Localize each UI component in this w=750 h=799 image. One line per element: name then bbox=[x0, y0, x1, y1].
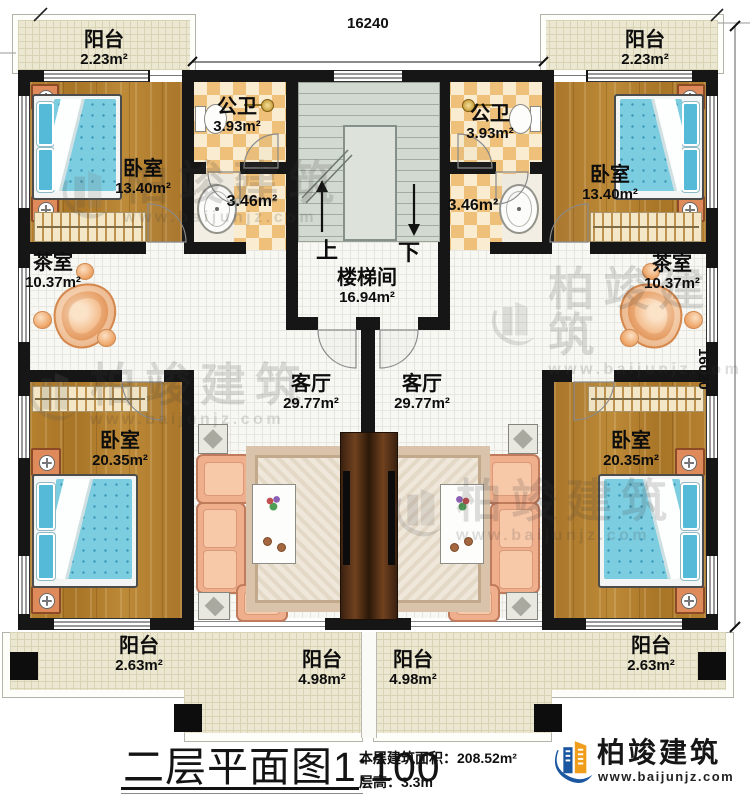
room-label-bedroom-tr: 卧室13.40m² bbox=[582, 165, 638, 203]
washbasin bbox=[499, 184, 539, 234]
floor-area-text: 本层建筑面积：208.52m² bbox=[359, 748, 517, 768]
room-label-wash-r: 3.46m² bbox=[448, 197, 499, 214]
room-label-living-r: 客厅29.77m² bbox=[394, 374, 450, 412]
room-label-balcony-bmr: 阳台4.98m² bbox=[389, 650, 437, 688]
stair-up-label: 上 bbox=[316, 233, 338, 265]
watermark-url: www.baijunjz.com bbox=[123, 209, 343, 227]
room-label-balcony-tr: 阳台2.23m² bbox=[621, 30, 669, 68]
room-label-bedroom-br: 卧室20.35m² bbox=[603, 431, 659, 469]
floor-height-text: 层高：3.3m bbox=[359, 772, 433, 792]
room-label-wash-l: 3.46m² bbox=[227, 193, 278, 210]
room-label-balcony-br: 阳台2.63m² bbox=[627, 636, 675, 674]
wardrobe bbox=[590, 212, 702, 242]
room-label-balcony-bl: 阳台2.63m² bbox=[115, 636, 163, 674]
room-label-bedroom-tl: 卧室13.40m² bbox=[115, 159, 171, 197]
pillar bbox=[534, 704, 562, 732]
title-underline bbox=[121, 787, 359, 790]
stair-down-label: 下 bbox=[398, 235, 420, 267]
room-label-tea-r: 茶室10.37m² bbox=[644, 254, 700, 292]
title-underline-thin bbox=[121, 793, 363, 794]
room-label-living-l: 客厅29.77m² bbox=[283, 374, 339, 412]
room-label-balcony-bml: 阳台4.98m² bbox=[298, 650, 346, 688]
watermark: 柏竣建筑www.baijunjz.com bbox=[388, 478, 676, 545]
room-label-bedroom-bl: 卧室20.35m² bbox=[92, 431, 148, 469]
pillar bbox=[698, 652, 726, 680]
dimension-right: 16020 bbox=[695, 348, 712, 390]
company-logo-icon bbox=[548, 736, 594, 786]
watermark-logo-icon bbox=[55, 165, 113, 223]
floor-plan-page: 柏竣建筑 www.baijunjz.com 柏竣建筑www.baijunjz.c… bbox=[0, 0, 750, 799]
room-label-bath-l: 公卫3.93m² bbox=[213, 97, 261, 135]
room-label-bath-r: 公卫3.93m² bbox=[466, 104, 514, 142]
watermark: 柏竣建筑www.baijunjz.com bbox=[22, 362, 310, 429]
room-label-stairwell: 楼梯间16.94m² bbox=[337, 268, 397, 306]
wardrobe bbox=[588, 386, 704, 412]
dimension-top: 16240 bbox=[347, 15, 389, 32]
company-logo-text: 柏竣建筑 bbox=[597, 739, 721, 767]
room-label-tea-l: 茶室10.37m² bbox=[25, 253, 81, 291]
company-logo-url: www.baijunjz.com bbox=[598, 769, 734, 784]
balcony-divider bbox=[361, 632, 377, 738]
watermark: 柏竣建筑 www.baijunjz.com bbox=[55, 160, 343, 227]
room-label-balcony-tl: 阳台2.23m² bbox=[80, 30, 128, 68]
